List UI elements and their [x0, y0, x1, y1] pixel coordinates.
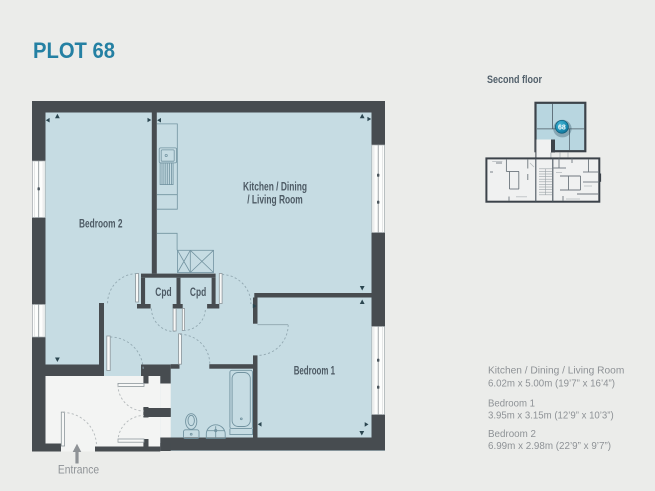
svg-text:68: 68	[558, 124, 566, 131]
svg-text:Cpd: Cpd	[155, 287, 171, 299]
svg-text:6.02m x 5.00m (19’7” x 16’4”): 6.02m x 5.00m (19’7” x 16’4”)	[488, 377, 615, 389]
svg-text:3.95m x 3.15m (12’9” x 10’3”): 3.95m x 3.15m (12’9” x 10’3”)	[488, 410, 614, 422]
svg-text:Kitchen / Dining / Living Room: Kitchen / Dining / Living Room	[488, 365, 625, 377]
svg-text:PLOT 68: PLOT 68	[33, 38, 115, 63]
svg-text:Entrance: Entrance	[58, 463, 99, 477]
svg-text:6.99m x 2.98m (22’9” x 9’7”): 6.99m x 2.98m (22’9” x 9’7”)	[488, 440, 611, 452]
svg-text:Bedroom 2: Bedroom 2	[488, 428, 536, 440]
svg-text:Bedroom 1: Bedroom 1	[294, 365, 336, 377]
svg-text:Bedroom 1: Bedroom 1	[488, 398, 535, 410]
svg-text:Second floor: Second floor	[487, 74, 543, 86]
svg-text:Bedroom 2: Bedroom 2	[79, 219, 123, 231]
svg-text:/ Living Room: / Living Room	[247, 195, 303, 207]
svg-text:Cpd: Cpd	[190, 287, 206, 299]
svg-text:Kitchen / Dining: Kitchen / Dining	[243, 182, 307, 194]
